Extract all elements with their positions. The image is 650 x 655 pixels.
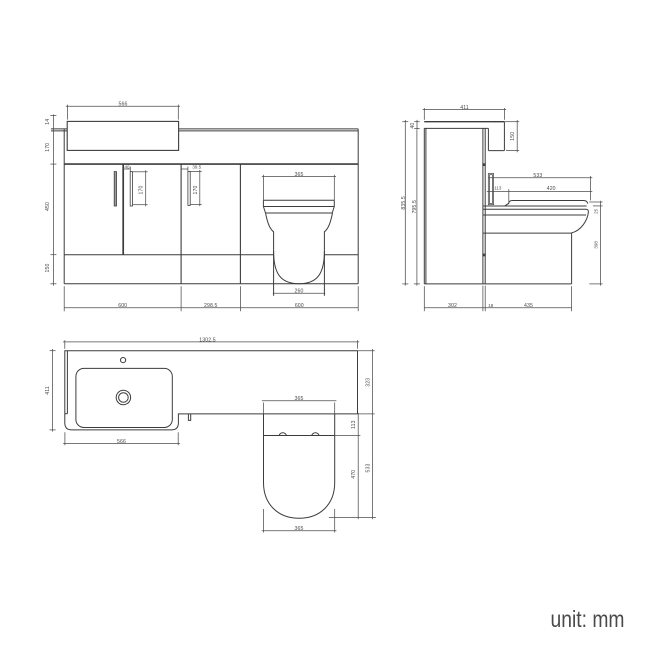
- svg-text:40: 40: [410, 123, 416, 129]
- svg-text:unit: mm: unit: mm: [551, 606, 625, 632]
- svg-text:795.5: 795.5: [412, 200, 418, 213]
- svg-text:18: 18: [488, 303, 494, 308]
- svg-text:260: 260: [295, 289, 304, 295]
- svg-text:14: 14: [45, 119, 51, 125]
- svg-text:113: 113: [494, 185, 502, 190]
- svg-text:420: 420: [547, 186, 556, 192]
- svg-text:566: 566: [119, 102, 128, 108]
- svg-text:600: 600: [118, 303, 127, 309]
- svg-text:365: 365: [295, 396, 304, 402]
- svg-text:411: 411: [460, 105, 469, 111]
- svg-text:411: 411: [45, 386, 51, 395]
- svg-text:298.5: 298.5: [204, 303, 217, 309]
- svg-text:323: 323: [365, 378, 371, 387]
- svg-text:39.5: 39.5: [192, 165, 201, 170]
- svg-text:170: 170: [45, 143, 51, 152]
- svg-text:25: 25: [593, 208, 598, 214]
- svg-text:1302.5: 1302.5: [199, 337, 215, 343]
- svg-text:150: 150: [510, 132, 516, 141]
- svg-text:170: 170: [139, 186, 145, 195]
- svg-text:835.5: 835.5: [401, 196, 407, 209]
- svg-text:398: 398: [593, 241, 598, 249]
- svg-text:302: 302: [448, 303, 457, 309]
- svg-text:365: 365: [295, 526, 304, 532]
- svg-text:533: 533: [533, 173, 542, 179]
- svg-text:113: 113: [351, 420, 357, 429]
- svg-text:533: 533: [365, 464, 371, 473]
- svg-text:365: 365: [295, 172, 304, 178]
- svg-text:566: 566: [117, 439, 126, 445]
- svg-text:450: 450: [45, 202, 51, 211]
- svg-text:470: 470: [351, 470, 357, 479]
- svg-text:170: 170: [193, 186, 199, 195]
- svg-text:600: 600: [295, 303, 304, 309]
- svg-text:40: 40: [124, 165, 130, 170]
- svg-text:435: 435: [524, 303, 533, 309]
- svg-text:150: 150: [45, 264, 51, 273]
